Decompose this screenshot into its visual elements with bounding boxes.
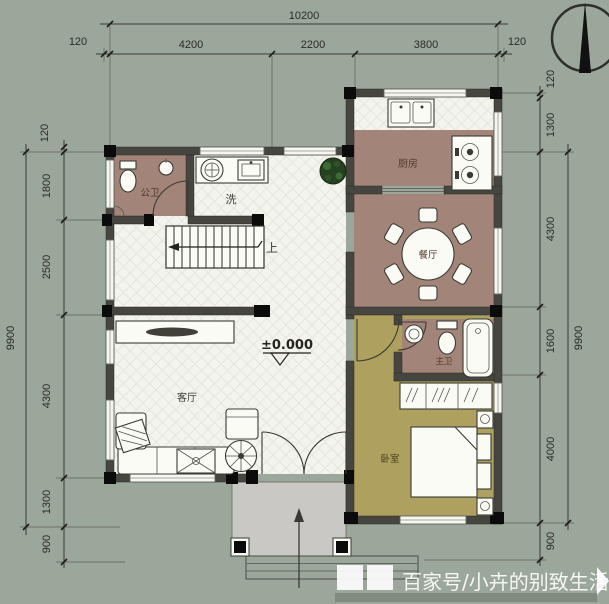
toilet — [120, 161, 136, 192]
room-label-bedroom: 卧室 — [380, 453, 399, 465]
window — [200, 147, 264, 155]
window — [494, 112, 502, 176]
dim-label: 4000 — [545, 437, 557, 461]
room-label-kitchen: 厨房 — [398, 157, 418, 170]
window — [106, 330, 114, 364]
dim-label: 900 — [545, 532, 557, 550]
dim-label: 1300 — [545, 113, 557, 137]
nightstand — [477, 411, 493, 428]
dining-chair — [419, 286, 437, 300]
window — [106, 160, 114, 208]
dim-label: 4300 — [41, 384, 53, 408]
dim-label: 3800 — [414, 39, 438, 51]
mosaic-block — [337, 565, 363, 590]
dim-label: 4300 — [545, 217, 557, 241]
nightstand — [477, 498, 493, 515]
window — [106, 400, 114, 460]
armchair — [226, 409, 258, 439]
dim-label: 120 — [39, 124, 51, 142]
dim-total-width: 10200 — [289, 10, 320, 22]
mosaic-block — [367, 565, 393, 590]
laundry-counter — [196, 157, 268, 183]
window — [384, 89, 466, 97]
dim-total-left: 9900 — [5, 326, 17, 350]
room-label-dining: 餐厅 — [418, 249, 438, 261]
headboard-cushion — [477, 434, 491, 460]
potted-plant — [320, 158, 346, 184]
watermark: 百家号/小卉的别致生活 — [335, 565, 609, 602]
window — [106, 240, 114, 300]
stove — [452, 136, 492, 190]
window — [494, 228, 502, 294]
headboard-cushion — [477, 463, 491, 489]
window — [284, 147, 336, 155]
dining-chair — [419, 208, 437, 222]
elevation-value: ±0.000 — [261, 338, 313, 353]
wardrobe — [400, 383, 492, 409]
dim-label: 1600 — [545, 329, 557, 353]
tv — [146, 328, 198, 337]
dim-label: 900 — [41, 535, 53, 553]
dim-label: 1300 — [41, 490, 53, 514]
window — [400, 516, 466, 524]
dim-label: 120 — [508, 36, 526, 48]
watermark-text: 百家号/小卉的别致生活 — [402, 570, 609, 594]
dim-label: 120 — [545, 70, 557, 88]
dim-label: 2500 — [41, 255, 53, 279]
room-label-master-bathroom: 主卫 — [435, 356, 453, 367]
master-bath-sink — [405, 325, 423, 343]
floor-plan-canvas: 10200 120 4200 2200 3800 120 120 1800 25… — [0, 0, 609, 604]
fan-decor — [226, 441, 257, 472]
bathtub — [463, 319, 493, 377]
window — [494, 383, 502, 413]
room-label-laundry: 洗 — [226, 193, 237, 206]
coffee-table — [177, 449, 215, 473]
floor-plan-screenshot: 10200 120 4200 2200 3800 120 120 1800 25… — [0, 0, 609, 604]
dim-label: 2200 — [301, 39, 325, 51]
stairs-up-label: 上 — [266, 241, 278, 255]
dim-label: 4200 — [179, 39, 203, 51]
dim-total-right: 9900 — [573, 326, 585, 350]
stairs — [166, 226, 264, 268]
room-label-living: 客厅 — [177, 391, 197, 404]
dim-label: 120 — [69, 36, 87, 48]
kitchen-sink — [388, 99, 434, 127]
master-toilet — [437, 321, 457, 354]
window — [130, 474, 215, 482]
dim-label: 1800 — [41, 174, 53, 198]
room-label-public-bathroom: 公卫 — [140, 188, 160, 199]
tv-cabinet — [116, 321, 234, 343]
